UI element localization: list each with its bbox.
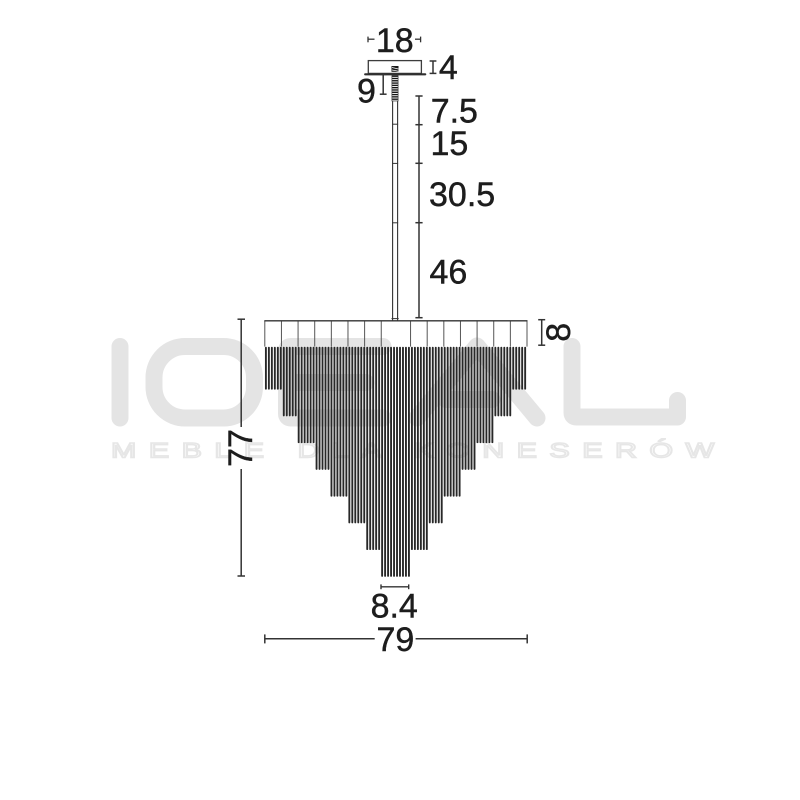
svg-text:4: 4 bbox=[439, 49, 458, 87]
svg-text:18: 18 bbox=[376, 22, 414, 60]
svg-text:15: 15 bbox=[431, 125, 469, 163]
svg-text:9: 9 bbox=[357, 73, 376, 111]
svg-text:30.5: 30.5 bbox=[429, 176, 495, 214]
svg-text:8: 8 bbox=[540, 323, 578, 342]
svg-text:8.4: 8.4 bbox=[371, 588, 418, 626]
svg-text:77: 77 bbox=[222, 429, 260, 467]
svg-text:MEBLE DLA KONESERÓW: MEBLE DLA KONESERÓW bbox=[111, 438, 727, 462]
svg-text:46: 46 bbox=[430, 254, 468, 292]
svg-text:79: 79 bbox=[376, 621, 414, 659]
